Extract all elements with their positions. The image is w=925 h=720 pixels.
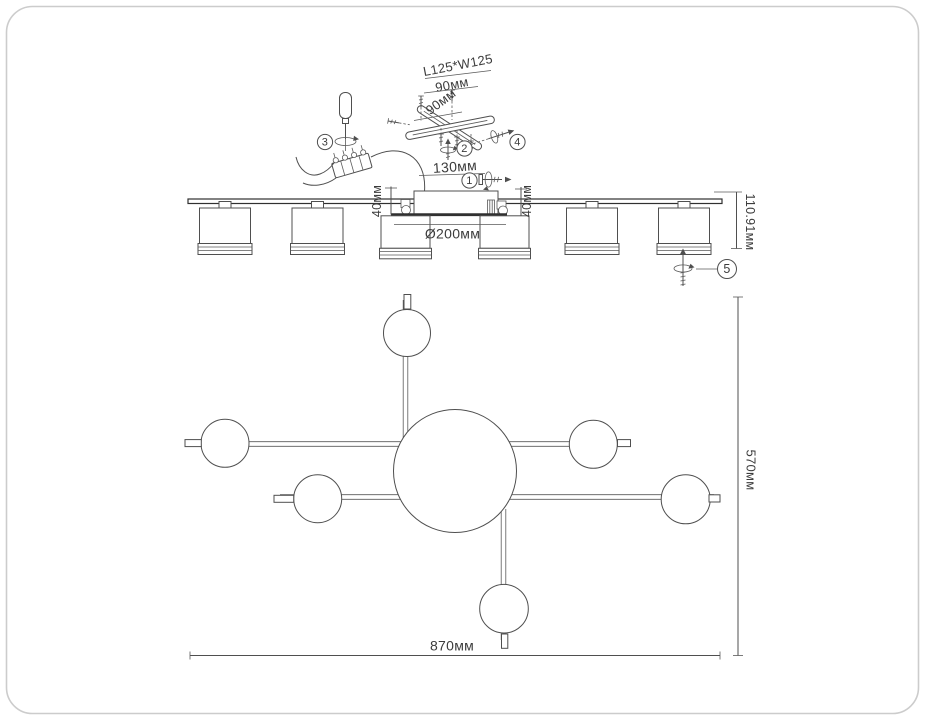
lighting-fixture-drawing: 3 (0, 0, 925, 720)
frame-border (7, 7, 919, 714)
shade-circle (480, 584, 529, 633)
shade-circle (569, 420, 617, 468)
center-shade-diameter-label: Ø200мм (425, 226, 480, 242)
arm-end-cap (502, 634, 508, 648)
canopy-height-left-label: 40мм (370, 185, 384, 217)
shade (657, 202, 711, 255)
shade (198, 202, 252, 255)
overall-width-label: 870мм (430, 638, 474, 654)
shade-circle (384, 310, 431, 357)
shade-circle (661, 475, 710, 524)
arm-end-cap (404, 295, 411, 310)
canopy-height-right-label: 40мм (520, 185, 534, 217)
step-1-number: 1 (466, 175, 472, 187)
arm-end-cap (185, 440, 201, 447)
technical-drawing-canvas: 3 (0, 0, 925, 720)
arm-end-cap (618, 440, 631, 447)
step-2-number: 2 (461, 143, 467, 155)
shade (479, 216, 531, 259)
step-3-number: 3 (322, 137, 328, 149)
shade (380, 216, 432, 259)
shade (291, 202, 345, 255)
overall-depth-label: 570мм (744, 449, 759, 490)
step-5-number: 5 (723, 262, 730, 276)
arm-end-cap (274, 495, 294, 502)
center-shade-circle (394, 410, 517, 533)
shade (565, 202, 619, 255)
step-1-badge: 1 (462, 173, 477, 188)
total-height-label: 110.91мм (743, 194, 757, 251)
step-4-badge: 4 (510, 134, 525, 149)
shade-circle (294, 475, 342, 523)
step-4-number: 4 (514, 137, 520, 149)
step-2-badge: 2 (457, 141, 472, 156)
step-3-badge: 3 (317, 134, 332, 149)
shade-circle (201, 419, 249, 467)
arm-end-cap (709, 495, 720, 502)
